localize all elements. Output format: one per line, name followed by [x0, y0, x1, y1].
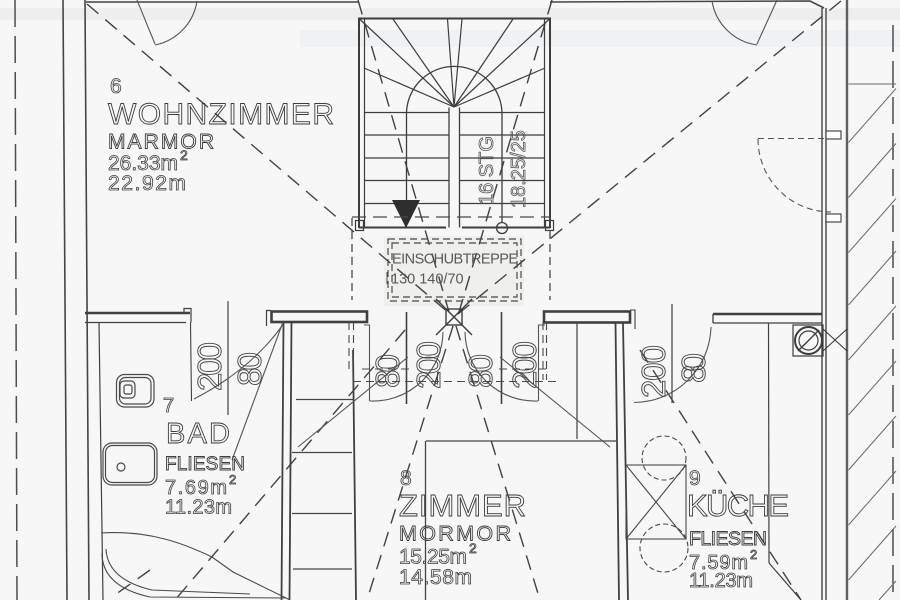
svg-text:WOHNZIMMER: WOHNZIMMER: [108, 98, 334, 131]
svg-text:6: 6: [110, 75, 122, 98]
svg-text:2: 2: [180, 147, 188, 163]
svg-text:9: 9: [689, 467, 701, 490]
svg-text:2: 2: [750, 547, 757, 562]
svg-text:KÜCHE: KÜCHE: [687, 488, 789, 523]
svg-text:2: 2: [229, 472, 236, 487]
svg-text:MARMOR: MARMOR: [108, 131, 214, 154]
svg-text:8: 8: [400, 467, 412, 490]
svg-text:14.58m: 14.58m: [399, 566, 472, 589]
svg-text:80: 80: [462, 354, 499, 388]
svg-text:16 STG: 16 STG: [476, 136, 498, 205]
svg-text:7: 7: [163, 395, 174, 417]
svg-text:18.25/25: 18.25/25: [508, 130, 530, 208]
svg-text:EINSCHUBTREPPE: EINSCHUBTREPPE: [392, 252, 518, 268]
svg-text:ZIMMER: ZIMMER: [399, 488, 526, 523]
svg-text:200: 200: [506, 341, 543, 389]
svg-text:200: 200: [635, 345, 672, 398]
svg-text:2: 2: [469, 540, 477, 556]
svg-text:80: 80: [369, 354, 406, 388]
svg-text:80: 80: [231, 352, 268, 386]
svg-text:80: 80: [675, 353, 712, 383]
svg-text:200: 200: [191, 342, 228, 391]
svg-text:11.23m: 11.23m: [689, 570, 753, 592]
svg-text:BAD: BAD: [166, 418, 230, 450]
svg-text:200: 200: [410, 341, 447, 389]
svg-text:130 140/70: 130 140/70: [391, 272, 464, 288]
svg-text:11.23m: 11.23m: [165, 497, 232, 519]
